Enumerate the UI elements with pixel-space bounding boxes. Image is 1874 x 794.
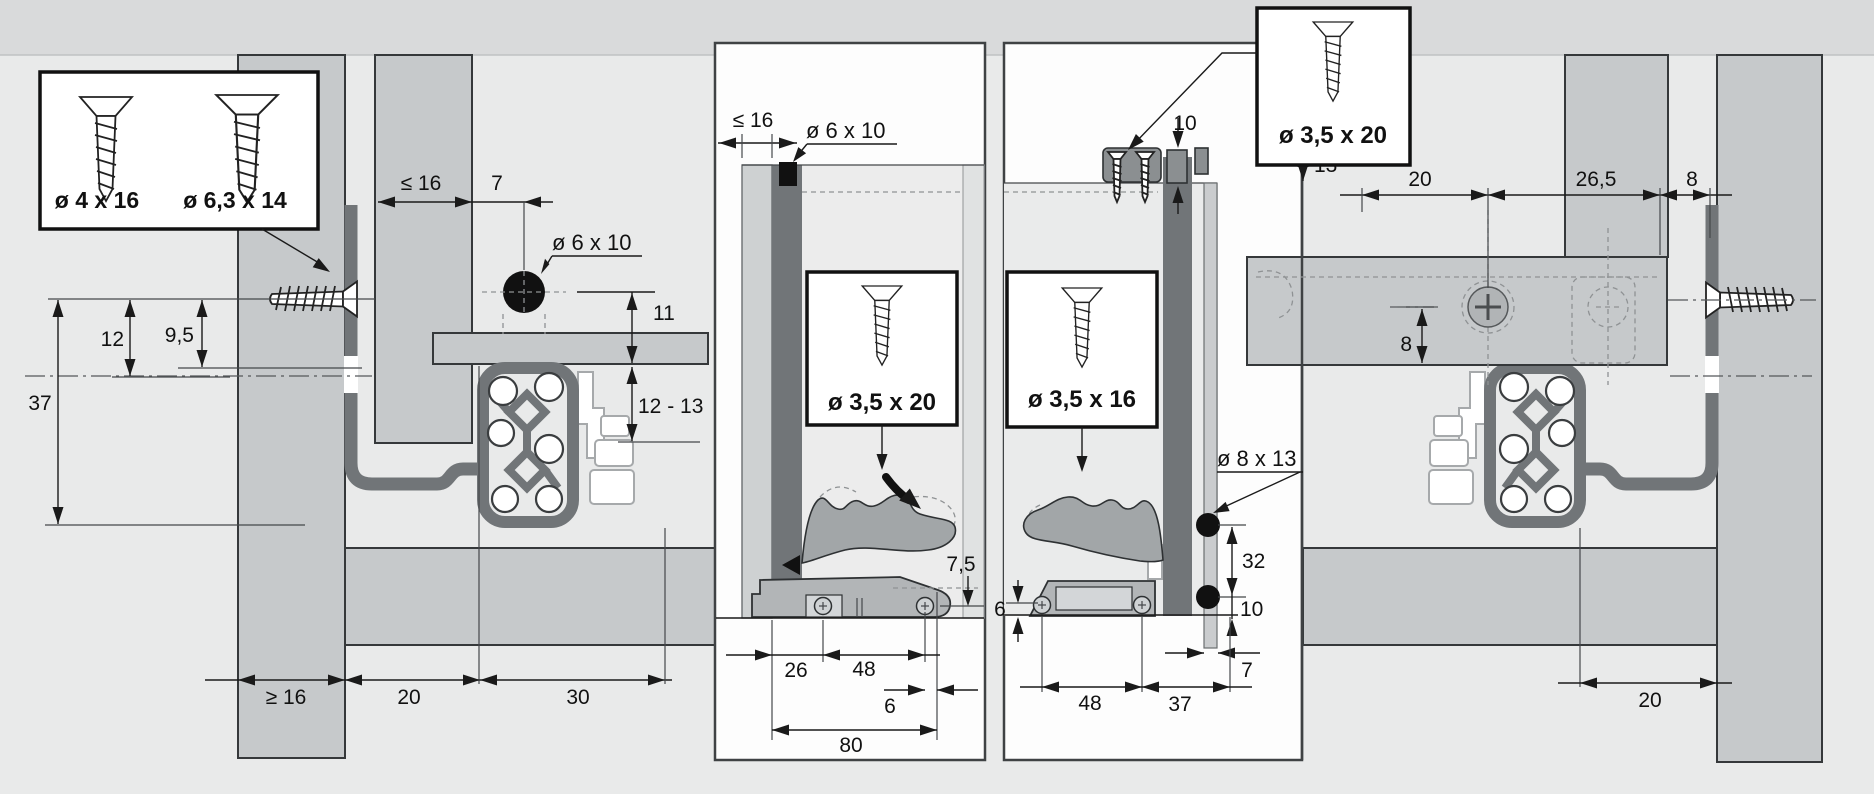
screw-spec-large: ø 6,3 x 14 xyxy=(183,187,287,213)
dimension-le16: ≤ 16 xyxy=(401,172,442,195)
dimension-10b: 10 xyxy=(1240,598,1263,621)
dimension-48: 48 xyxy=(1078,692,1101,715)
dimension-37: 37 xyxy=(1168,693,1191,716)
screw-spec-small: ø 4 x 16 xyxy=(55,187,139,213)
dimension-le16: ≤ 16 xyxy=(733,109,774,132)
dimension-8: 8 xyxy=(1686,168,1698,191)
dimension-20: 20 xyxy=(1408,168,1431,191)
drawer-side-board xyxy=(375,55,472,443)
plug-label: ø 6 x 10 xyxy=(806,118,885,143)
dimension-20: 20 xyxy=(397,686,420,709)
dimension-7: 7 xyxy=(1241,659,1253,682)
dimension-9-5: 9,5 xyxy=(165,324,194,347)
dimension-20-bottom: 20 xyxy=(1638,689,1661,712)
hole-8x13 xyxy=(1196,513,1220,537)
screw-spec: ø 3,5 x 20 xyxy=(828,389,936,416)
drawer-side-board-right xyxy=(1565,55,1668,257)
dimension-10: 10 xyxy=(1173,112,1196,135)
dimension-6: 6 xyxy=(994,598,1006,621)
dimension-8-mid: 8 xyxy=(1400,333,1412,356)
dimension-7: 7 xyxy=(491,172,503,195)
runner-rail-strip xyxy=(772,165,802,618)
drawer-front-edge xyxy=(1204,183,1217,648)
dimension-26-5: 26,5 xyxy=(1576,168,1617,191)
bottom-board-right xyxy=(1303,548,1717,645)
plug-6x10 xyxy=(779,162,797,186)
installation-diagram-page: 37 12 9,5 ≤ 16 7 ø 6 x 10 11 12 - 13 ≥ 1… xyxy=(0,0,1874,794)
screw-spec: ø 3,5 x 20 xyxy=(1279,122,1387,149)
runner-rail-strip xyxy=(1163,157,1192,616)
screw-spec: ø 3,5 x 16 xyxy=(1028,386,1136,413)
cabinet-side-panel-right xyxy=(1717,55,1822,762)
dimension-7-5: 7,5 xyxy=(946,553,975,576)
dimension-30: 30 xyxy=(566,686,589,709)
dimension-ge16: ≥ 16 xyxy=(266,686,307,709)
dimension-26: 26 xyxy=(784,659,807,682)
hole-label: ø 6 x 10 xyxy=(552,230,631,255)
dimension-37: 37 xyxy=(28,392,51,415)
bottom-board xyxy=(345,548,716,645)
dimension-48: 48 xyxy=(852,658,875,681)
dimension-12: 12 xyxy=(101,328,124,351)
dimension-80: 80 xyxy=(839,734,862,757)
hole-label: ø 8 x 13 xyxy=(1217,446,1296,471)
hole-8x13 xyxy=(1196,585,1220,609)
drawer-edge-strip xyxy=(963,165,984,618)
drawer-runner-installation-diagram: 37 12 9,5 ≤ 16 7 ø 6 x 10 11 12 - 13 ≥ 1… xyxy=(0,0,1874,794)
dimension-11: 11 xyxy=(653,302,675,325)
dimension-12-13: 12 - 13 xyxy=(638,395,703,418)
dimension-6: 6 xyxy=(884,695,896,718)
dimension-32: 32 xyxy=(1242,550,1265,573)
fixing-shelf xyxy=(433,333,708,364)
board-edge xyxy=(742,165,772,618)
